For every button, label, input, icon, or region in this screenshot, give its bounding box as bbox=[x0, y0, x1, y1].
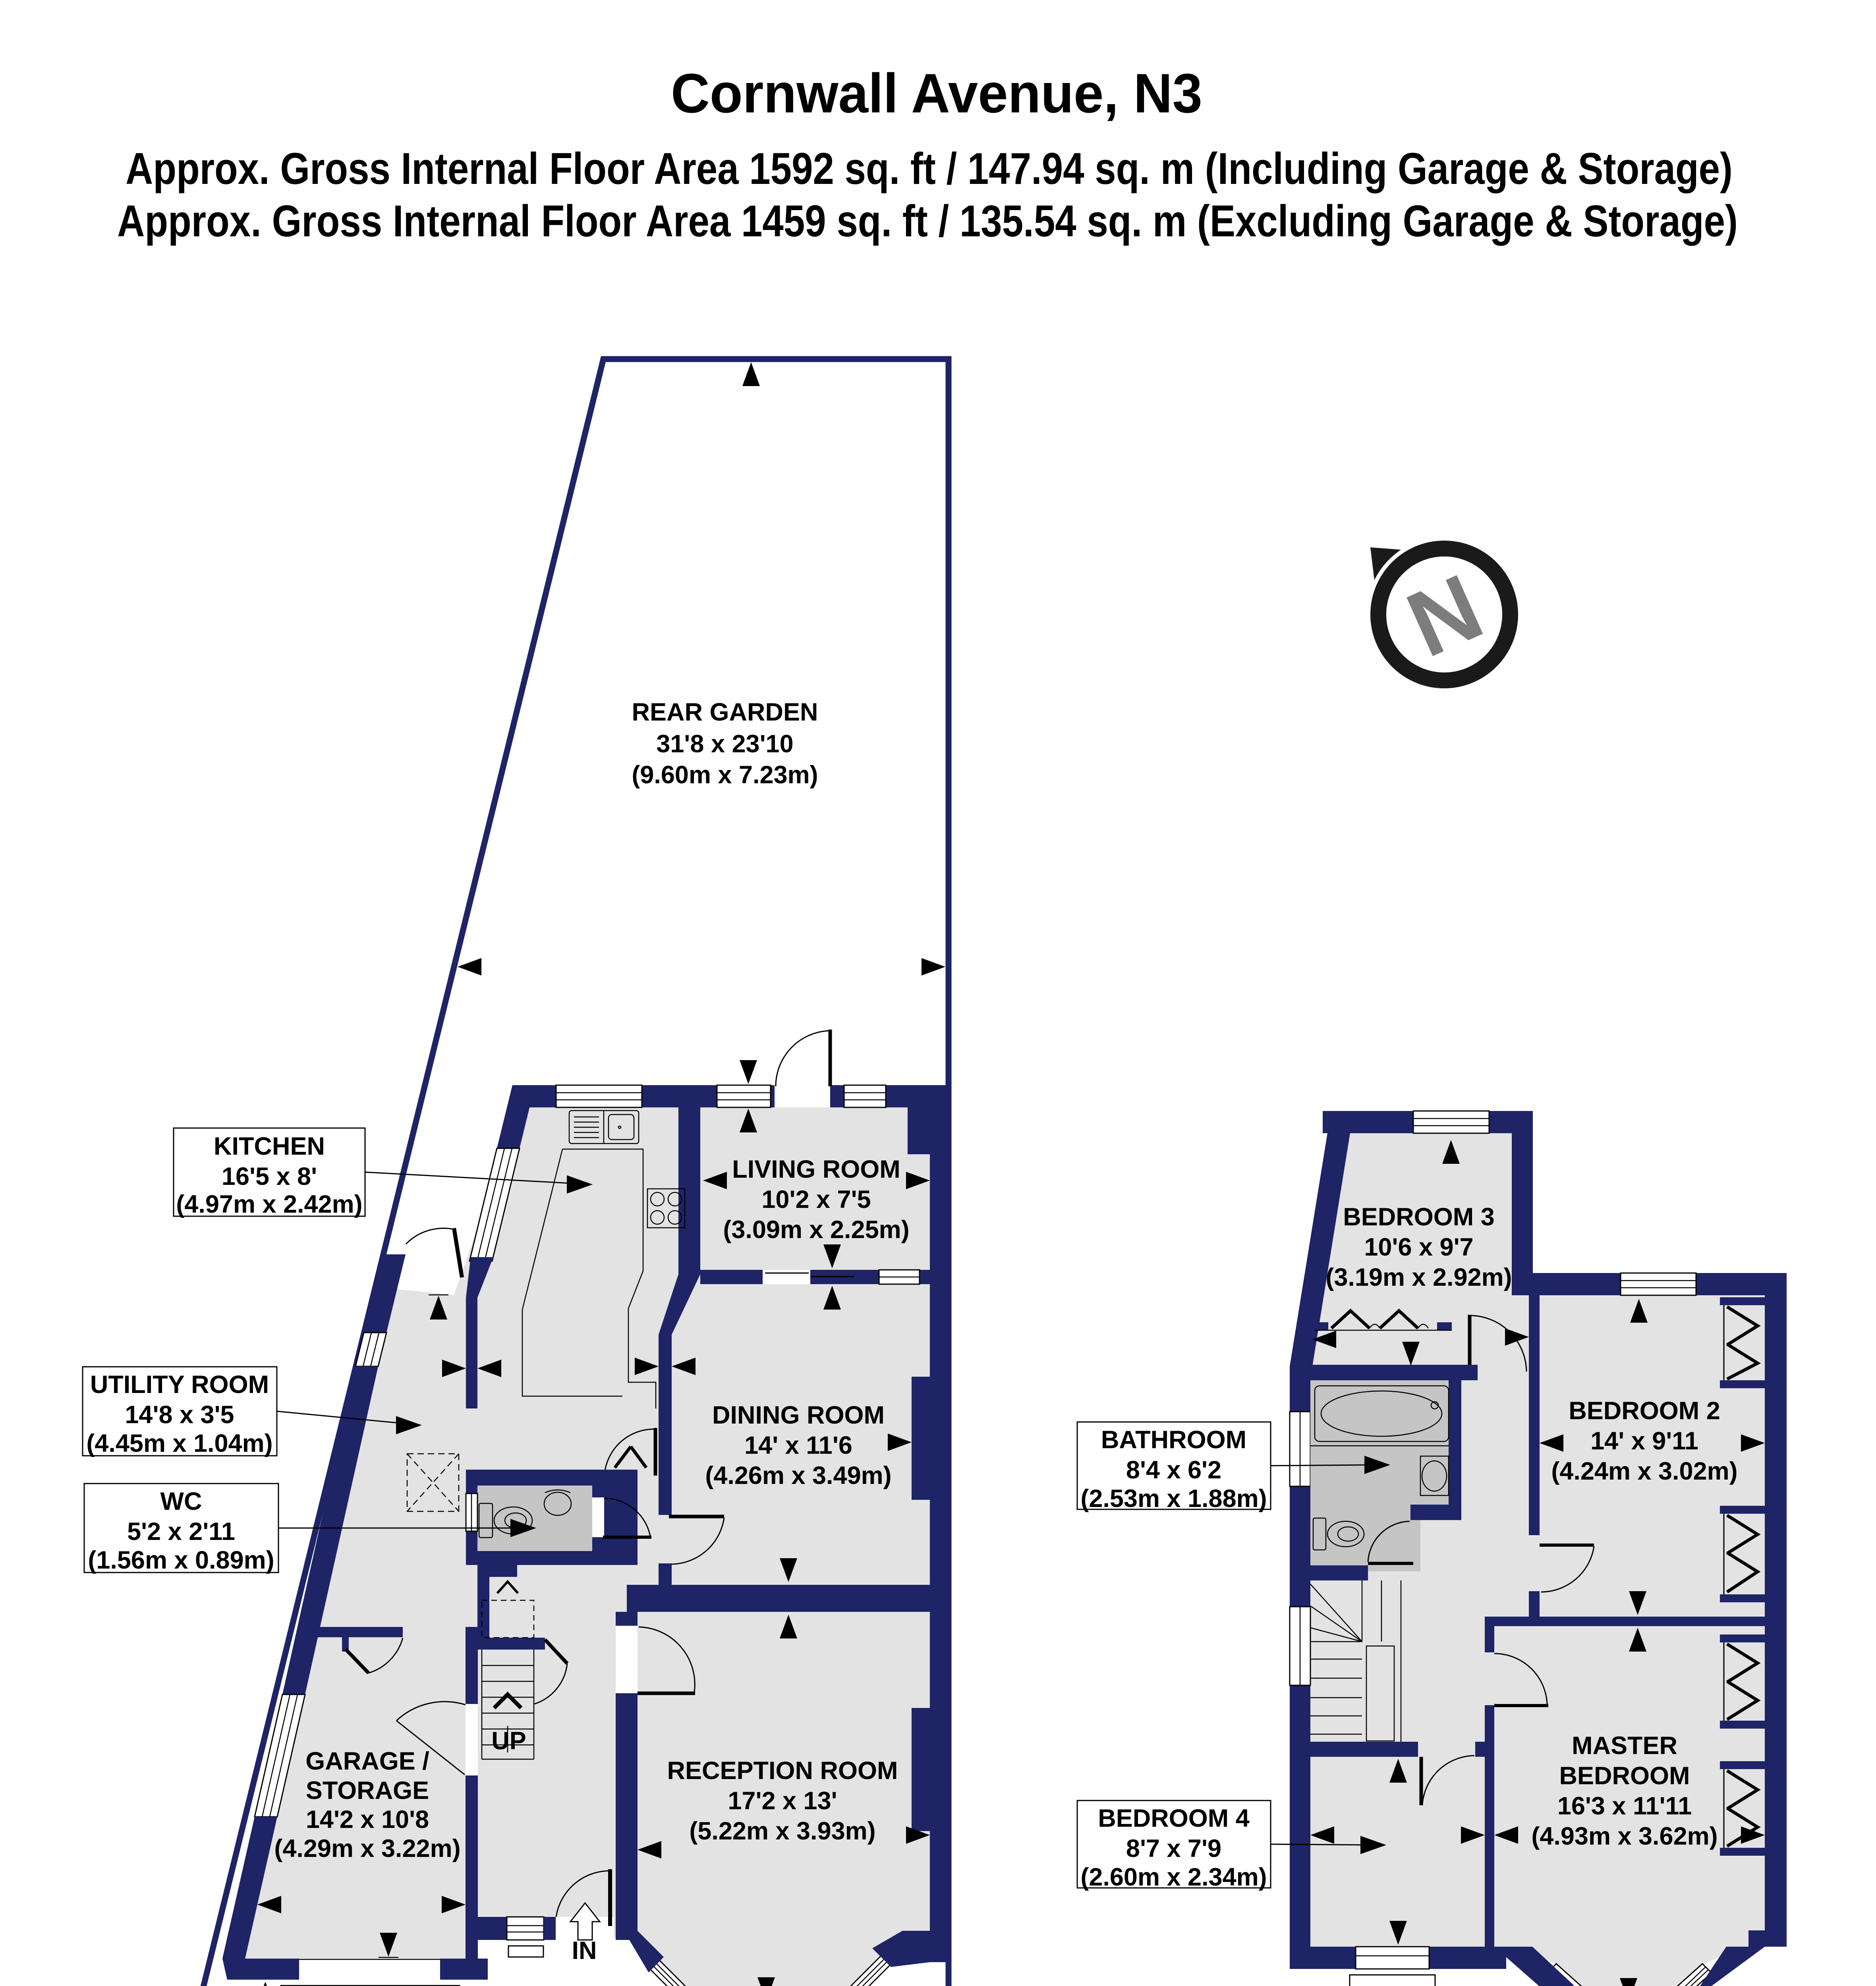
svg-text:IN: IN bbox=[572, 1937, 597, 1965]
svg-text:BEDROOM 4: BEDROOM 4 bbox=[1098, 1804, 1250, 1832]
svg-text:16'5 x 8': 16'5 x 8' bbox=[222, 1163, 317, 1190]
svg-text:(2.60m x 2.34m): (2.60m x 2.34m) bbox=[1080, 1863, 1267, 1891]
svg-text:8'4 x 6'2: 8'4 x 6'2 bbox=[1126, 1456, 1221, 1484]
svg-text:Cornwall Avenue, N3: Cornwall Avenue, N3 bbox=[671, 62, 1202, 124]
svg-text:BATHROOM: BATHROOM bbox=[1101, 1426, 1246, 1454]
svg-text:(9.60m x 7.23m): (9.60m x 7.23m) bbox=[632, 761, 818, 789]
svg-text:REAR GARDEN: REAR GARDEN bbox=[632, 698, 818, 726]
svg-text:MASTER: MASTER bbox=[1572, 1732, 1677, 1760]
svg-text:(3.09m x 2.25m): (3.09m x 2.25m) bbox=[723, 1216, 909, 1244]
svg-text:16'3 x 11'11: 16'3 x 11'11 bbox=[1557, 1792, 1692, 1820]
svg-text:GARAGE /: GARAGE / bbox=[305, 1747, 429, 1775]
svg-text:10'6 x 9'7: 10'6 x 9'7 bbox=[1364, 1233, 1473, 1261]
svg-text:LIVING ROOM: LIVING ROOM bbox=[732, 1155, 900, 1183]
svg-text:10'2 x 7'5: 10'2 x 7'5 bbox=[761, 1186, 871, 1213]
svg-text:14' x 9'11: 14' x 9'11 bbox=[1590, 1427, 1698, 1455]
svg-text:(4.29m x 3.22m): (4.29m x 3.22m) bbox=[274, 1835, 460, 1862]
svg-text:(1.56m x 0.89m): (1.56m x 0.89m) bbox=[88, 1546, 274, 1574]
svg-text:(4.45m x 1.04m): (4.45m x 1.04m) bbox=[86, 1430, 272, 1457]
svg-text:DINING ROOM: DINING ROOM bbox=[712, 1401, 885, 1429]
svg-text:(2.53m x 1.88m): (2.53m x 1.88m) bbox=[1080, 1485, 1267, 1513]
svg-text:(4.97m x 2.42m): (4.97m x 2.42m) bbox=[176, 1190, 362, 1218]
svg-text:BEDROOM 3: BEDROOM 3 bbox=[1343, 1203, 1495, 1231]
svg-text:31'8 x 23'10: 31'8 x 23'10 bbox=[656, 730, 793, 758]
svg-text:8'7 x 7'9: 8'7 x 7'9 bbox=[1126, 1835, 1221, 1862]
svg-text:BEDROOM 2: BEDROOM 2 bbox=[1569, 1397, 1720, 1425]
svg-text:(4.24m x 3.02m): (4.24m x 3.02m) bbox=[1551, 1457, 1737, 1485]
svg-text:STORAGE: STORAGE bbox=[306, 1777, 429, 1804]
svg-text:17'2 x 13': 17'2 x 13' bbox=[728, 1787, 837, 1815]
svg-text:UP: UP bbox=[491, 1727, 526, 1755]
svg-text:14'8 x 3'5: 14'8 x 3'5 bbox=[125, 1401, 234, 1429]
svg-text:RECEPTION ROOM: RECEPTION ROOM bbox=[667, 1757, 898, 1785]
svg-text:UTILITY ROOM: UTILITY ROOM bbox=[90, 1371, 269, 1399]
svg-text:14'2 x 10'8: 14'2 x 10'8 bbox=[306, 1806, 429, 1833]
svg-text:WC: WC bbox=[160, 1488, 202, 1515]
svg-text:Approx. Gross Internal Floor A: Approx. Gross Internal Floor Area 1459 s… bbox=[117, 196, 1738, 246]
svg-text:(4.93m x 3.62m): (4.93m x 3.62m) bbox=[1531, 1822, 1718, 1850]
svg-text:(3.19m x 2.92m): (3.19m x 2.92m) bbox=[1325, 1263, 1512, 1291]
svg-text:(5.22m x 3.93m): (5.22m x 3.93m) bbox=[689, 1817, 875, 1845]
svg-text:5'2 x 2'11: 5'2 x 2'11 bbox=[127, 1518, 235, 1546]
svg-text:14' x 11'6: 14' x 11'6 bbox=[744, 1432, 852, 1459]
svg-text:Approx. Gross Internal Floor A: Approx. Gross Internal Floor Area 1592 s… bbox=[126, 144, 1733, 193]
svg-text:BEDROOM: BEDROOM bbox=[1559, 1762, 1690, 1790]
svg-text:(4.26m x 3.49m): (4.26m x 3.49m) bbox=[705, 1462, 891, 1489]
svg-text:KITCHEN: KITCHEN bbox=[214, 1132, 325, 1160]
